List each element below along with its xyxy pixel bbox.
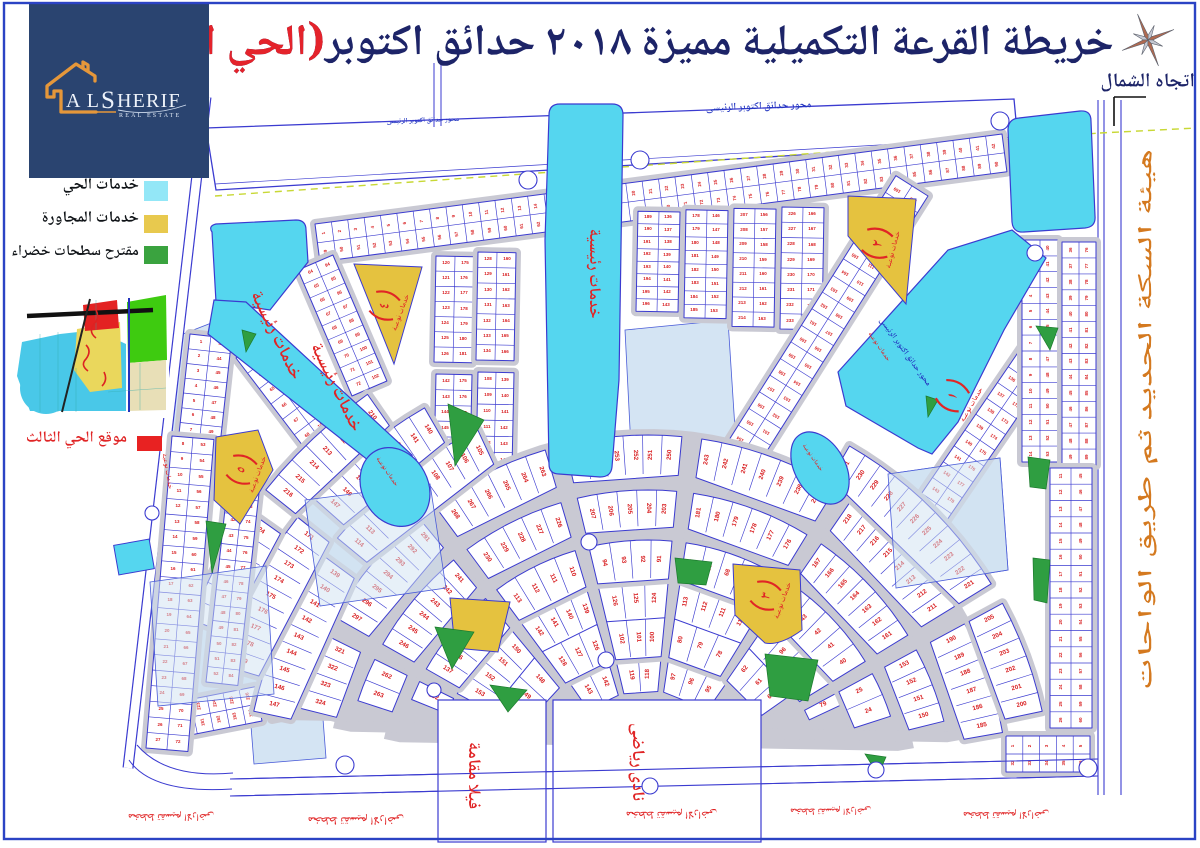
svg-text:230: 230 <box>787 272 795 277</box>
svg-text:182: 182 <box>691 267 699 272</box>
svg-text:143: 143 <box>500 441 508 446</box>
svg-text:57: 57 <box>1078 668 1083 674</box>
svg-text:181: 181 <box>691 253 699 258</box>
svg-text:178: 178 <box>460 306 468 311</box>
svg-text:250: 250 <box>666 449 674 460</box>
svg-text:13: 13 <box>1058 506 1063 512</box>
svg-text:169: 169 <box>807 257 815 262</box>
svg-text:22: 22 <box>1058 652 1063 658</box>
svg-text:143: 143 <box>442 394 450 399</box>
svg-text:125: 125 <box>632 592 640 603</box>
svg-text:100: 100 <box>649 631 656 642</box>
svg-text:53: 53 <box>1045 451 1050 457</box>
svg-text:143: 143 <box>662 302 670 307</box>
svg-text:91: 91 <box>656 555 663 563</box>
svg-text:16: 16 <box>1058 554 1063 560</box>
svg-text:139: 139 <box>501 377 509 382</box>
svg-text:124: 124 <box>441 320 449 325</box>
svg-text:38: 38 <box>1068 279 1073 285</box>
svg-text:147: 147 <box>712 227 720 232</box>
svg-text:133: 133 <box>483 333 491 338</box>
svg-text:37: 37 <box>1068 263 1073 269</box>
svg-text:213: 213 <box>738 300 746 305</box>
svg-text:21: 21 <box>1058 636 1063 642</box>
svg-text:19: 19 <box>1058 603 1063 609</box>
svg-text:55: 55 <box>198 474 204 479</box>
svg-text:47: 47 <box>1068 422 1073 428</box>
svg-text:40: 40 <box>1068 311 1073 317</box>
svg-text:82: 82 <box>1084 343 1089 349</box>
svg-text:166: 166 <box>808 211 816 216</box>
svg-text:15: 15 <box>1058 538 1063 544</box>
svg-text:76: 76 <box>1084 247 1089 253</box>
svg-text:131: 131 <box>484 302 492 307</box>
svg-text:176: 176 <box>459 394 467 399</box>
svg-text:55: 55 <box>1078 636 1083 642</box>
svg-text:170: 170 <box>807 272 815 277</box>
svg-text:150: 150 <box>711 267 719 272</box>
svg-text:13: 13 <box>1028 435 1033 441</box>
svg-text:141: 141 <box>663 277 671 282</box>
svg-text:185: 185 <box>690 307 698 312</box>
svg-text:HERIF: HERIF <box>117 90 181 112</box>
svg-text:101: 101 <box>635 631 643 642</box>
svg-text:12: 12 <box>1058 489 1063 495</box>
svg-text:87: 87 <box>1084 422 1089 428</box>
svg-text:52: 52 <box>1045 435 1050 441</box>
svg-text:48: 48 <box>210 415 216 420</box>
svg-text:125: 125 <box>441 335 449 340</box>
svg-text:44: 44 <box>1045 308 1050 314</box>
svg-text:168: 168 <box>808 242 816 247</box>
svg-text:13: 13 <box>174 519 180 524</box>
svg-text:149: 149 <box>711 254 719 259</box>
svg-text:35: 35 <box>1061 760 1066 766</box>
svg-text:204: 204 <box>645 503 652 514</box>
svg-text:109: 109 <box>484 392 492 397</box>
svg-text:56: 56 <box>196 489 202 494</box>
svg-text:44: 44 <box>1068 374 1073 380</box>
svg-text:17: 17 <box>1058 571 1063 577</box>
svg-text:181: 181 <box>459 351 467 356</box>
svg-text:118: 118 <box>644 668 651 679</box>
svg-text:20: 20 <box>1058 619 1063 625</box>
svg-text:72: 72 <box>175 739 181 744</box>
svg-text:80: 80 <box>1084 311 1089 317</box>
svg-text:47: 47 <box>1078 506 1083 512</box>
svg-text:81: 81 <box>1084 327 1089 333</box>
svg-text:190: 190 <box>644 226 652 231</box>
svg-text:10: 10 <box>1028 388 1033 394</box>
svg-text:136: 136 <box>664 214 672 219</box>
svg-text:43: 43 <box>1045 293 1050 299</box>
svg-text:58: 58 <box>194 520 200 525</box>
svg-text:162: 162 <box>759 301 767 306</box>
svg-text:88: 88 <box>1084 438 1089 444</box>
svg-text:205: 205 <box>626 503 634 514</box>
svg-text:11: 11 <box>1058 473 1063 478</box>
svg-text:134: 134 <box>483 348 491 353</box>
svg-text:137: 137 <box>664 227 672 232</box>
svg-text:192: 192 <box>643 251 651 256</box>
svg-text:24: 24 <box>1058 684 1063 690</box>
svg-text:226: 226 <box>788 211 796 216</box>
svg-text:44: 44 <box>216 356 222 361</box>
svg-text:126: 126 <box>441 351 449 356</box>
svg-text:47: 47 <box>211 400 217 405</box>
svg-text:178: 178 <box>692 213 700 218</box>
svg-text:206: 206 <box>606 505 614 517</box>
svg-text:43: 43 <box>228 533 234 538</box>
svg-text:51: 51 <box>1045 419 1050 425</box>
svg-text:142: 142 <box>663 289 671 294</box>
svg-text:175: 175 <box>461 260 469 265</box>
svg-text:56: 56 <box>1078 652 1083 658</box>
svg-text:108: 108 <box>484 376 492 381</box>
svg-text:70: 70 <box>178 708 184 713</box>
svg-text:71: 71 <box>177 723 183 728</box>
svg-text:18: 18 <box>1058 587 1063 593</box>
svg-text:167: 167 <box>808 226 816 231</box>
svg-text:252: 252 <box>632 450 639 461</box>
svg-text:163: 163 <box>502 303 510 308</box>
svg-text:45: 45 <box>215 370 221 375</box>
svg-text:42: 42 <box>1068 343 1073 349</box>
svg-text:231: 231 <box>787 287 795 292</box>
svg-text:210: 210 <box>739 256 747 261</box>
svg-text:142: 142 <box>500 425 508 430</box>
svg-text:59: 59 <box>1078 701 1083 707</box>
svg-text:212: 212 <box>739 286 747 291</box>
svg-text:189: 189 <box>644 214 652 219</box>
svg-text:111: 111 <box>483 424 491 429</box>
svg-text:179: 179 <box>460 321 468 326</box>
svg-text:26: 26 <box>157 722 163 727</box>
svg-text:54: 54 <box>1078 619 1083 625</box>
svg-text:45: 45 <box>1068 390 1073 396</box>
svg-text:166: 166 <box>501 349 509 354</box>
svg-text:139: 139 <box>663 252 671 257</box>
svg-text:144: 144 <box>441 409 449 414</box>
svg-text:175: 175 <box>459 378 467 383</box>
svg-text:120: 120 <box>442 260 450 265</box>
svg-text:27: 27 <box>155 737 161 742</box>
svg-text:214: 214 <box>738 315 746 320</box>
svg-text:228: 228 <box>787 241 795 246</box>
svg-text:142: 142 <box>442 378 450 383</box>
svg-text:128: 128 <box>484 256 492 261</box>
svg-text:176: 176 <box>460 275 468 280</box>
svg-text:50: 50 <box>1045 403 1050 409</box>
svg-text:12: 12 <box>1028 419 1033 425</box>
svg-text:61: 61 <box>190 567 196 572</box>
svg-text:11: 11 <box>177 488 182 493</box>
svg-text:83: 83 <box>1084 358 1089 364</box>
svg-text:49: 49 <box>1045 388 1050 394</box>
svg-text:152: 152 <box>711 294 719 299</box>
svg-text:34: 34 <box>1044 760 1049 766</box>
svg-text:44: 44 <box>226 548 232 553</box>
svg-text:25: 25 <box>158 706 164 711</box>
svg-text:S: S <box>101 87 115 114</box>
svg-text:54: 54 <box>199 458 205 463</box>
svg-text:207: 207 <box>740 212 748 217</box>
svg-text:14: 14 <box>1058 522 1063 528</box>
svg-text:58: 58 <box>1078 684 1083 690</box>
svg-text:79: 79 <box>1084 295 1089 301</box>
svg-text:179: 179 <box>692 226 700 231</box>
svg-text:23: 23 <box>1058 668 1063 674</box>
svg-text:53: 53 <box>1078 603 1083 609</box>
svg-text:211: 211 <box>739 271 747 276</box>
svg-text:49: 49 <box>1078 538 1083 544</box>
svg-text:84: 84 <box>1084 374 1089 380</box>
svg-text:159: 159 <box>759 257 767 262</box>
svg-text:122: 122 <box>442 290 450 295</box>
svg-text:86: 86 <box>1084 406 1089 412</box>
svg-text:180: 180 <box>691 240 699 245</box>
svg-text:25: 25 <box>1058 701 1063 707</box>
svg-text:50: 50 <box>1078 554 1083 560</box>
svg-text:46: 46 <box>213 385 219 390</box>
svg-text:132: 132 <box>483 318 491 323</box>
svg-text:26: 26 <box>1058 717 1063 723</box>
svg-text:194: 194 <box>643 276 651 281</box>
svg-text:184: 184 <box>690 294 698 299</box>
svg-text:A L: A L <box>66 90 100 112</box>
svg-text:78: 78 <box>1084 279 1089 285</box>
svg-text:16: 16 <box>170 566 176 571</box>
svg-text:15: 15 <box>171 550 177 555</box>
svg-text:232: 232 <box>786 302 794 307</box>
svg-text:121: 121 <box>442 275 450 280</box>
svg-text:40: 40 <box>1045 245 1050 251</box>
svg-text:60: 60 <box>1078 717 1083 723</box>
svg-text:233: 233 <box>786 318 794 323</box>
svg-text:177: 177 <box>460 290 468 295</box>
svg-text:148: 148 <box>712 240 720 245</box>
svg-text:180: 180 <box>459 336 467 341</box>
svg-text:57: 57 <box>195 505 201 510</box>
svg-text:43: 43 <box>1068 358 1073 364</box>
svg-text:123: 123 <box>442 305 450 310</box>
svg-text:161: 161 <box>759 286 767 291</box>
svg-text:208: 208 <box>740 227 748 232</box>
svg-text:193: 193 <box>643 264 651 269</box>
svg-text:36: 36 <box>1068 247 1073 253</box>
svg-text:46: 46 <box>1068 406 1073 412</box>
svg-text:171: 171 <box>807 287 815 292</box>
svg-text:48: 48 <box>1078 522 1083 528</box>
svg-text:162: 162 <box>502 287 510 292</box>
svg-text:49: 49 <box>1068 454 1073 460</box>
svg-text:48: 48 <box>1068 438 1073 444</box>
svg-text:51: 51 <box>1078 571 1083 577</box>
svg-text:74: 74 <box>245 519 251 524</box>
svg-text:92: 92 <box>639 555 646 563</box>
svg-text:129: 129 <box>484 271 492 276</box>
svg-text:45: 45 <box>1078 473 1083 479</box>
svg-text:130: 130 <box>484 287 492 292</box>
svg-text:195: 195 <box>642 289 650 294</box>
svg-text:196: 196 <box>642 301 650 306</box>
svg-text:183: 183 <box>691 280 699 285</box>
svg-text:164: 164 <box>502 318 510 323</box>
svg-text:14: 14 <box>172 534 178 539</box>
svg-text:11: 11 <box>1028 403 1033 408</box>
svg-text:76: 76 <box>242 550 248 555</box>
svg-text:45: 45 <box>225 564 231 569</box>
svg-text:163: 163 <box>758 316 766 321</box>
svg-text:141: 141 <box>501 409 509 414</box>
svg-text:146: 146 <box>712 213 720 218</box>
svg-text:47: 47 <box>1045 356 1050 362</box>
svg-text:59: 59 <box>192 536 198 541</box>
svg-text:251: 251 <box>647 449 654 460</box>
svg-text:157: 157 <box>760 227 768 232</box>
svg-text:10: 10 <box>177 472 183 477</box>
svg-text:14: 14 <box>1028 451 1033 457</box>
svg-text:49: 49 <box>208 429 214 434</box>
svg-text:124: 124 <box>651 592 658 603</box>
svg-text:41: 41 <box>1045 261 1050 267</box>
svg-text:203: 203 <box>661 503 669 514</box>
svg-text:52: 52 <box>1078 587 1083 593</box>
svg-text:160: 160 <box>759 271 767 276</box>
svg-text:39: 39 <box>1068 295 1073 301</box>
svg-text:209: 209 <box>739 241 747 246</box>
svg-text:165: 165 <box>501 333 509 338</box>
svg-text:158: 158 <box>760 242 768 247</box>
svg-text:89: 89 <box>1084 454 1089 460</box>
svg-text:151: 151 <box>711 281 719 286</box>
svg-text:140: 140 <box>663 264 671 269</box>
svg-text:42: 42 <box>1045 277 1050 283</box>
svg-text:110: 110 <box>483 408 491 413</box>
svg-text:161: 161 <box>502 272 510 277</box>
svg-text:48: 48 <box>1045 372 1050 378</box>
svg-text:229: 229 <box>787 257 795 262</box>
svg-text:93: 93 <box>620 556 628 564</box>
svg-text:60: 60 <box>191 552 197 557</box>
svg-text:REAL ESTATE: REAL ESTATE <box>119 113 181 119</box>
svg-text:140: 140 <box>501 393 509 398</box>
svg-text:160: 160 <box>503 256 511 261</box>
svg-text:77: 77 <box>1084 263 1089 269</box>
svg-text:53: 53 <box>200 442 206 447</box>
svg-text:227: 227 <box>788 226 796 231</box>
svg-text:153: 153 <box>710 308 718 313</box>
svg-text:156: 156 <box>760 212 768 217</box>
svg-text:46: 46 <box>1078 489 1083 495</box>
svg-text:191: 191 <box>643 239 651 244</box>
svg-text:138: 138 <box>664 239 672 244</box>
svg-text:75: 75 <box>243 535 249 540</box>
svg-text:12: 12 <box>175 503 181 508</box>
svg-text:85: 85 <box>1084 390 1089 396</box>
svg-text:41: 41 <box>1068 327 1073 333</box>
